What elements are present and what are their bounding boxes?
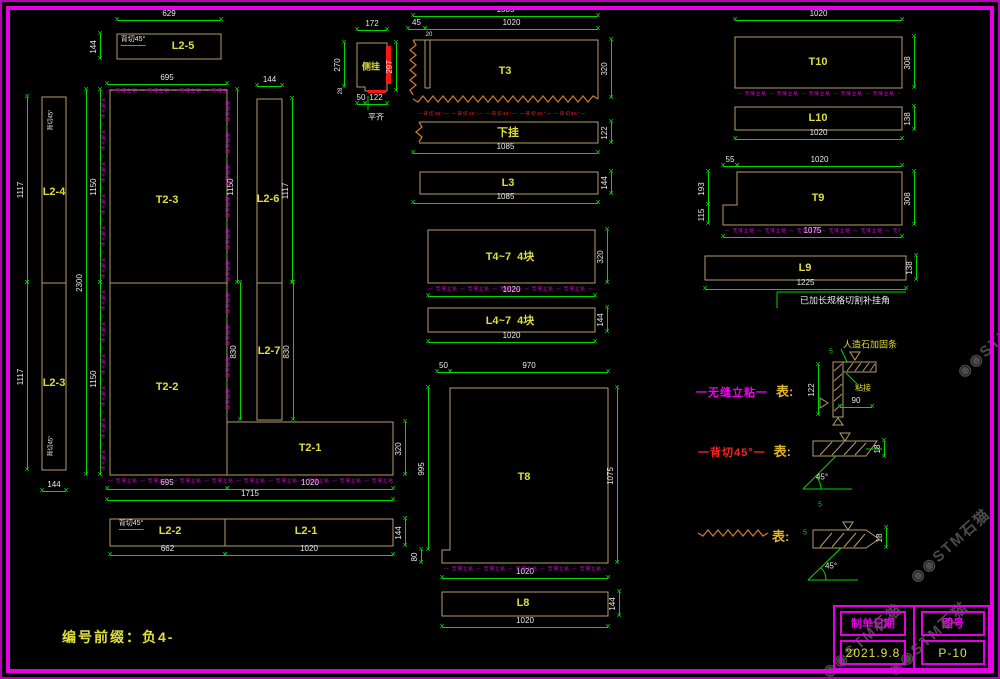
dim-line [405, 422, 406, 475]
panel-label-L10: L10 [809, 112, 828, 124]
seamless-bond-dash-line: — 无缝立粘 — 无缝立粘 — 无缝立粘 — 无缝立粘 — 无缝立粘 — 无缝立… [737, 91, 900, 96]
dim-tick: ✕ [837, 404, 843, 411]
dim-tick: ✕ [290, 417, 296, 424]
dim-tick: ✕ [614, 560, 620, 567]
panel-label-L2-3: L2-3 [43, 377, 66, 389]
dim-tick: ✕ [595, 150, 601, 157]
dim-tick: ✕ [911, 85, 917, 92]
panel-label-L2-4: L2-4 [43, 186, 66, 198]
dim-value: 193 [698, 182, 706, 195]
dim-tick: ✕ [869, 404, 875, 411]
drawing-shape [840, 433, 850, 441]
dim-tick: ✕ [592, 293, 598, 300]
dim-line [107, 84, 227, 85]
dim-tick: ✕ [402, 516, 408, 523]
dim-tick: ✕ [439, 624, 445, 631]
dim-tick: ✕ [224, 486, 230, 493]
seamless-bond-dash-line: — 无缝立粘 — 无缝立粘 — 无缝立粘 — 无缝立粘 — 无缝立粘 — 无缝立… [444, 566, 606, 571]
panel-label-L2-1: L2-1 [295, 525, 318, 537]
dim-value: 320 [597, 250, 605, 263]
dim-line [107, 500, 393, 501]
dim-tick: ✕ [97, 56, 103, 63]
annotation-note: 5 [803, 530, 807, 537]
drawing-shape [833, 418, 843, 425]
dim-tick: ✕ [63, 488, 69, 495]
dim-tick: ✕ [911, 104, 917, 111]
dim-value: 138 [904, 112, 912, 125]
drawing-shape [844, 533, 856, 547]
dim-tick: ✕ [24, 280, 30, 287]
dim-line [86, 90, 87, 475]
dim-tick: ✕ [605, 575, 611, 582]
annotation-note: 粘接 [855, 383, 871, 394]
dim-line [840, 407, 872, 408]
dim-tick: ✕ [279, 83, 285, 90]
dim-tick: ✕ [402, 543, 408, 550]
dim-tick: ✕ [390, 486, 396, 493]
drawing-shape [854, 534, 865, 547]
dim-tick: ✕ [393, 88, 399, 95]
drawing-shape [834, 384, 842, 391]
dim-line [117, 20, 221, 21]
dim-tick: ✕ [425, 339, 431, 346]
dim-value: 122 [369, 94, 382, 102]
panel-label-T2-2: T2-2 [156, 381, 179, 393]
dim-tick: ✕ [604, 305, 610, 312]
annotation-note: 人造石加固条 [843, 338, 897, 351]
dim-value: 308 [904, 56, 912, 69]
legend-row-backcut-45: 一背切45°一表: [698, 441, 791, 461]
dim-line [357, 30, 387, 31]
dim-line [107, 489, 227, 490]
annotation-note: 背切45° [121, 34, 146, 46]
dim-tick: ✕ [354, 27, 360, 34]
dim-tick: ✕ [447, 369, 453, 376]
drawing-shape [820, 398, 828, 408]
cad-drawing-sheet: ✕✕629✕✕695✕✕144✕✕172✕✕1085✕✕1020✕✕45✕✕50… [0, 0, 1000, 679]
dim-value: 144 [597, 313, 605, 326]
panel-L2-6 [257, 99, 282, 283]
dim-tick: ✕ [107, 552, 113, 559]
dim-line [735, 139, 902, 140]
dim-value: 138 [906, 261, 914, 274]
dim-tick: ✕ [705, 221, 711, 228]
zigzag-edge [413, 96, 598, 102]
panel-label-T9: T9 [812, 192, 825, 204]
dim-line [428, 296, 595, 297]
dim-tick: ✕ [913, 277, 919, 284]
dim-line [914, 37, 915, 88]
dim-line [818, 365, 819, 415]
dim-tick: ✕ [290, 280, 296, 287]
drawing-shape [841, 349, 847, 362]
title-block-sheetno-header: 图号 [921, 611, 985, 636]
dim-tick: ✕ [899, 163, 905, 170]
dim-tick: ✕ [104, 497, 110, 504]
seamless-bond-dash-line: — 无缝立粘 — 无缝立粘 — 无缝立粘 — 无缝立粘 — 无缝立粘 — 无缝立… [725, 228, 900, 233]
dim-line [413, 153, 598, 154]
dim-line [428, 388, 429, 550]
dim-tick: ✕ [24, 94, 30, 101]
seamless-bond-dash-line: — 无缝立粘 — 无缝立粘 — 无缝立粘 — 无缝立粘 — 无缝立粘 — 无缝立… [108, 478, 393, 483]
dim-tick: ✕ [595, 200, 601, 207]
dim-value: 830 [230, 345, 238, 358]
drawing-shape [832, 533, 844, 547]
dim-value: 1085 [497, 143, 515, 151]
dim-line [344, 43, 345, 87]
dim-value: 1085 [497, 193, 515, 201]
dim-tick: ✕ [341, 40, 347, 47]
panel-label-L2-5: L2-5 [172, 40, 195, 52]
dim-tick: ✕ [899, 136, 905, 143]
panel-label-T3: T3 [499, 65, 512, 77]
seamless-bond-dash-line: — 无缝立粘 — 无缝立粘 — 无缝立粘 — 无缝立粘 — 无缝立粘 — 无缝立… [108, 88, 227, 93]
dim-value: 1117 [282, 183, 290, 200]
annotation-note: 平齐 [368, 112, 384, 123]
dim-tick: ✕ [405, 26, 411, 33]
dim-tick: ✕ [390, 552, 396, 559]
dim-tick: ✕ [608, 191, 614, 198]
dim-tick: ✕ [815, 362, 821, 369]
dim-value: 1020 [516, 617, 534, 625]
dim-tick: ✕ [224, 81, 230, 88]
dim-value: 1020 [300, 545, 318, 553]
dim-tick: ✕ [911, 34, 917, 41]
dim-value: 1150 [90, 370, 98, 387]
panel-label-L2-2: L2-2 [159, 525, 182, 537]
drawing-shape [844, 442, 856, 455]
dim-line [27, 97, 28, 283]
drawing-shape [832, 442, 844, 455]
dim-value: 1225 [797, 279, 815, 287]
title-block-divider [913, 607, 915, 668]
annotation-note: 45° [816, 473, 828, 482]
number-prefix-note: 编号前缀：负4- [62, 627, 174, 647]
dim-tick: ✕ [410, 150, 416, 157]
panel-label-L4~7-4块: L4~7 4块 [486, 312, 535, 328]
annotation-note: 背切45° [46, 109, 55, 130]
dim-value: 172 [365, 20, 378, 28]
dim-line [723, 237, 902, 238]
dim-tick: ✕ [97, 31, 103, 38]
dim-line [914, 172, 915, 225]
dim-line [708, 172, 709, 205]
drawing-shape [820, 533, 832, 547]
dim-tick: ✕ [425, 293, 431, 300]
panel-label-T4~7-4块: T4~7 4块 [486, 248, 535, 264]
panel-label-L8: L8 [517, 597, 530, 609]
dim-value: 308 [904, 192, 912, 205]
dim-value: 629 [162, 10, 175, 18]
dim-tick: ✕ [384, 101, 390, 108]
dim-tick: ✕ [390, 497, 396, 504]
dim-value: 830 [283, 345, 291, 358]
panel-label-下挂: 下挂 [497, 124, 519, 140]
annotation-note: 45° [825, 562, 837, 571]
dim-value: 80 [411, 552, 419, 561]
seamless-bond-dash-line: — 无缝立粘 — 无缝立粘 — 无缝立粘 — 无缝立粘 — 无缝立粘 — 无缝立… [225, 93, 230, 420]
drawing-shape [843, 522, 853, 530]
panel-label-T2-3: T2-3 [156, 194, 179, 206]
dim-tick: ✕ [595, 13, 601, 20]
dim-tick: ✕ [104, 81, 110, 88]
panel-label-L2-6: L2-6 [257, 193, 280, 205]
dim-line [292, 99, 293, 283]
dim-tick: ✕ [608, 140, 614, 147]
dim-tick: ✕ [425, 385, 431, 392]
panel-L2-2-L2-1 [110, 519, 393, 546]
dim-line [425, 29, 598, 30]
dim-line [735, 20, 902, 21]
zigzag-edge [416, 122, 422, 142]
dim-tick: ✕ [218, 17, 224, 24]
dim-tick: ✕ [614, 385, 620, 392]
dim-value: 1085 [497, 6, 515, 14]
dim-value: 144 [395, 526, 403, 539]
dim-tick: ✕ [362, 101, 368, 108]
dim-value: 18 [876, 534, 884, 543]
dim-tick: ✕ [222, 552, 228, 559]
title-block: 制单日期 图号 2021.9.8 P-10 [833, 605, 990, 670]
dim-value: 1020 [810, 10, 828, 18]
dim-tick: ✕ [425, 547, 431, 554]
dim-line [413, 16, 598, 17]
seamless-bond-dash-line: — 无缝立粘 — 无缝立粘 — 无缝立粘 — 无缝立粘 — 无缝立粘 — 无缝立… [100, 90, 105, 478]
dim-line [705, 289, 906, 290]
dim-tick: ✕ [104, 486, 110, 493]
legend-row-zigzag: 表: [772, 526, 789, 546]
legend-means-label: 表: [772, 529, 789, 544]
dim-value: 1075 [607, 467, 615, 485]
dim-tick: ✕ [616, 589, 622, 596]
legend-means-label: 表: [776, 384, 793, 399]
dim-tick: ✕ [604, 329, 610, 336]
annotation-note: 5 [818, 502, 822, 509]
dim-line [611, 40, 612, 98]
dim-value: 1020 [811, 156, 829, 164]
dim-value: 970 [522, 362, 535, 370]
annotation-note: 背切45° [119, 518, 144, 530]
dim-value: 1117 [17, 368, 25, 385]
annotation-note: 28 [338, 88, 344, 95]
dim-tick: ✕ [616, 613, 622, 620]
dim-tick: ✕ [732, 17, 738, 24]
backcut-dash-line: —背切45°— —背切45°— —背切45°— —背切45°— —背切45°— [418, 111, 600, 116]
dim-tick: ✕ [605, 624, 611, 631]
seamless-bond-dash-line: — 无缝立粘 — 无缝立粘 — 无缝立粘 — 无缝立粘 — 无缝立粘 — 无缝立… [428, 286, 595, 291]
dim-line [413, 203, 598, 204]
zigzag-edge [698, 530, 768, 536]
dim-tick: ✕ [903, 286, 909, 293]
dim-tick: ✕ [720, 234, 726, 241]
dim-tick: ✕ [899, 234, 905, 241]
panel-label-L2-7: L2-7 [258, 345, 281, 357]
dim-tick: ✕ [402, 419, 408, 426]
drawing-shape [855, 443, 866, 455]
panel-label-T2-1: T2-1 [299, 442, 322, 454]
drawing-shape [834, 364, 842, 371]
zigzag-edge [410, 40, 416, 95]
dim-value: 995 [418, 462, 426, 475]
dim-value: 18 [874, 445, 882, 454]
dim-value: 122 [601, 126, 609, 139]
dim-value: 320 [601, 62, 609, 75]
title-block-sheetno-value: P-10 [921, 640, 985, 665]
dim-tick: ✕ [605, 369, 611, 376]
dim-tick: ✕ [732, 136, 738, 143]
drawing-shape [863, 363, 869, 371]
drawing-shape [820, 442, 832, 455]
dim-value: 122 [808, 383, 816, 396]
dim-value: 45 [412, 19, 421, 27]
dim-tick: ✕ [883, 525, 889, 532]
dim-value: 270 [334, 58, 342, 71]
dim-value: 144 [90, 40, 98, 53]
dim-tick: ✕ [254, 83, 260, 90]
dim-tick: ✕ [234, 87, 240, 94]
dim-value: 144 [609, 597, 617, 610]
dim-line [617, 388, 618, 563]
legend-means-label: 表: [774, 444, 791, 459]
dim-tick: ✕ [899, 17, 905, 24]
dim-value: 695 [160, 74, 173, 82]
dim-tick: ✕ [24, 467, 30, 474]
dim-line [428, 342, 595, 343]
dim-value: 1715 [241, 490, 259, 498]
dim-line [442, 627, 608, 628]
dim-tick: ✕ [402, 472, 408, 479]
annotation-note: 已加长规格切割补挂角 [800, 294, 890, 307]
dim-tick: ✕ [608, 169, 614, 176]
annotation-note: 背切45° [46, 435, 55, 456]
dim-line [607, 230, 608, 283]
annotation-note: 20 [426, 32, 433, 38]
dim-tick: ✕ [734, 163, 740, 170]
dim-line [237, 90, 238, 283]
dim-line [737, 166, 902, 167]
dim-tick: ✕ [289, 96, 295, 103]
dim-tick: ✕ [705, 169, 711, 176]
drawing-shape [850, 352, 860, 360]
dim-tick: ✕ [237, 280, 243, 287]
dim-tick: ✕ [702, 286, 708, 293]
dim-tick: ✕ [881, 454, 887, 461]
dim-tick: ✕ [608, 37, 614, 44]
dim-line [293, 283, 294, 420]
dim-tick: ✕ [439, 575, 445, 582]
drawing-shape [834, 394, 842, 401]
dim-value: 2300 [76, 274, 84, 292]
dim-tick: ✕ [911, 169, 917, 176]
dim-value: 1020 [503, 332, 521, 340]
dim-value: 144 [601, 176, 609, 189]
dim-value: 144 [263, 76, 276, 84]
dim-tick: ✕ [410, 200, 416, 207]
dim-line [110, 555, 225, 556]
dim-tick: ✕ [237, 417, 243, 424]
dim-tick: ✕ [592, 339, 598, 346]
title-block-date-value: 2021.9.8 [840, 640, 906, 665]
panel-label-T8: T8 [518, 471, 531, 483]
dim-value: 662 [161, 545, 174, 553]
dim-value: 1020 [503, 19, 521, 27]
dim-tick: ✕ [911, 127, 917, 134]
legend-line-style-label: 一无缝立粘一 [696, 387, 768, 399]
panel-label-L9: L9 [799, 262, 812, 274]
dim-value: 1150 [90, 178, 98, 195]
dim-line [450, 372, 608, 373]
dim-tick: ✕ [604, 227, 610, 234]
dim-tick: ✕ [881, 438, 887, 445]
legend-line-style-label: 一背切45°一 [698, 447, 766, 459]
dim-tick: ✕ [39, 488, 45, 495]
dim-line [442, 578, 608, 579]
dim-tick: ✕ [83, 87, 89, 94]
panel-label-L3: L3 [502, 177, 515, 189]
drawing-shape [870, 364, 875, 371]
dim-value: 144 [47, 481, 60, 489]
dim-value: 297 [386, 60, 394, 73]
dim-line [396, 43, 397, 91]
dim-line [240, 283, 241, 420]
dim-tick: ✕ [608, 119, 614, 126]
panel-label-侧挂: 侧挂 [362, 60, 380, 73]
dim-tick: ✕ [595, 26, 601, 33]
dim-tick: ✕ [883, 545, 889, 552]
dim-line [27, 283, 28, 470]
dim-value: 1117 [17, 182, 25, 199]
drawing-shape [834, 374, 842, 381]
dim-value: 320 [395, 442, 403, 455]
dim-tick: ✕ [114, 17, 120, 24]
drawing-shape [855, 363, 861, 371]
dim-value: 90 [852, 397, 861, 405]
title-block-date-header: 制单日期 [840, 611, 906, 636]
dim-tick: ✕ [604, 280, 610, 287]
dim-value: 1020 [810, 129, 828, 137]
dim-tick: ✕ [608, 95, 614, 102]
annotation-note: 5 [829, 349, 833, 356]
dim-value: 115 [698, 208, 706, 221]
dim-tick: ✕ [83, 472, 89, 479]
dim-tick: ✕ [393, 40, 399, 47]
dim-tick: ✕ [384, 27, 390, 34]
drawing-shape [847, 363, 853, 371]
legend-row-seamless-bond: 一无缝立粘一表: [696, 381, 793, 401]
panel-label-T10: T10 [809, 56, 828, 68]
dim-tick: ✕ [913, 253, 919, 260]
dim-tick: ✕ [911, 222, 917, 229]
dim-line [225, 555, 393, 556]
dim-tick: ✕ [815, 412, 821, 419]
